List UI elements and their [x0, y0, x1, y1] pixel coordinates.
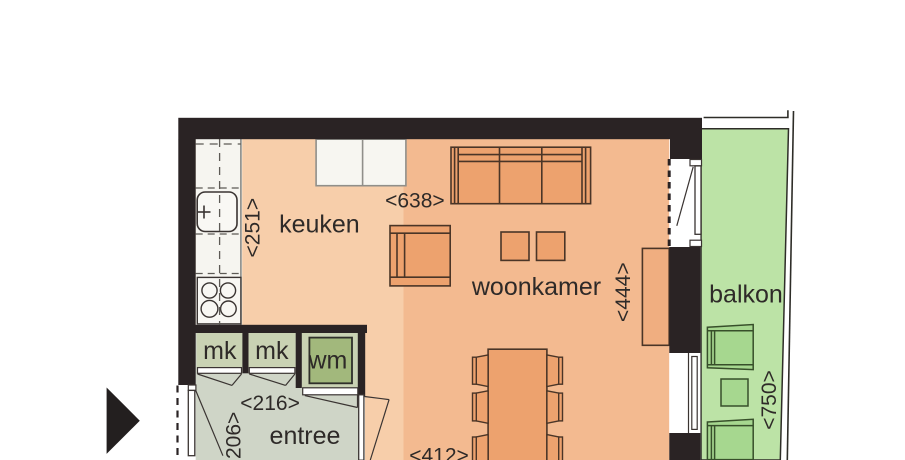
- svg-text:balkon: balkon: [709, 281, 783, 309]
- svg-text:<638>: <638>: [385, 189, 445, 212]
- svg-text:wm: wm: [307, 347, 347, 375]
- svg-text:<412>: <412>: [409, 444, 469, 460]
- svg-text:mk: mk: [255, 337, 289, 365]
- svg-text:<206>: <206>: [222, 412, 245, 460]
- svg-text:keuken: keuken: [279, 211, 360, 239]
- svg-text:entree: entree: [270, 422, 341, 450]
- svg-text:mk: mk: [203, 337, 237, 365]
- svg-text:woonkamer: woonkamer: [471, 273, 601, 301]
- svg-text:<216>: <216>: [240, 392, 300, 415]
- svg-text:<251>: <251>: [242, 198, 265, 258]
- svg-text:<444>: <444>: [612, 262, 635, 322]
- svg-text:<750>: <750>: [758, 370, 781, 430]
